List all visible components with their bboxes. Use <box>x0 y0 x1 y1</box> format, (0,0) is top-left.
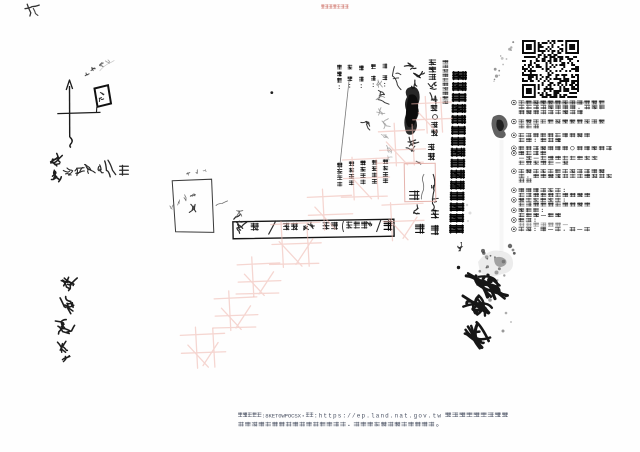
svg-text::https://ep.land.nat.gov.tw: :https://ep.land.nat.gov.tw <box>314 412 441 419</box>
svg-text::8KET0WPOCSX: :8KET0WPOCSX <box>262 412 302 419</box>
